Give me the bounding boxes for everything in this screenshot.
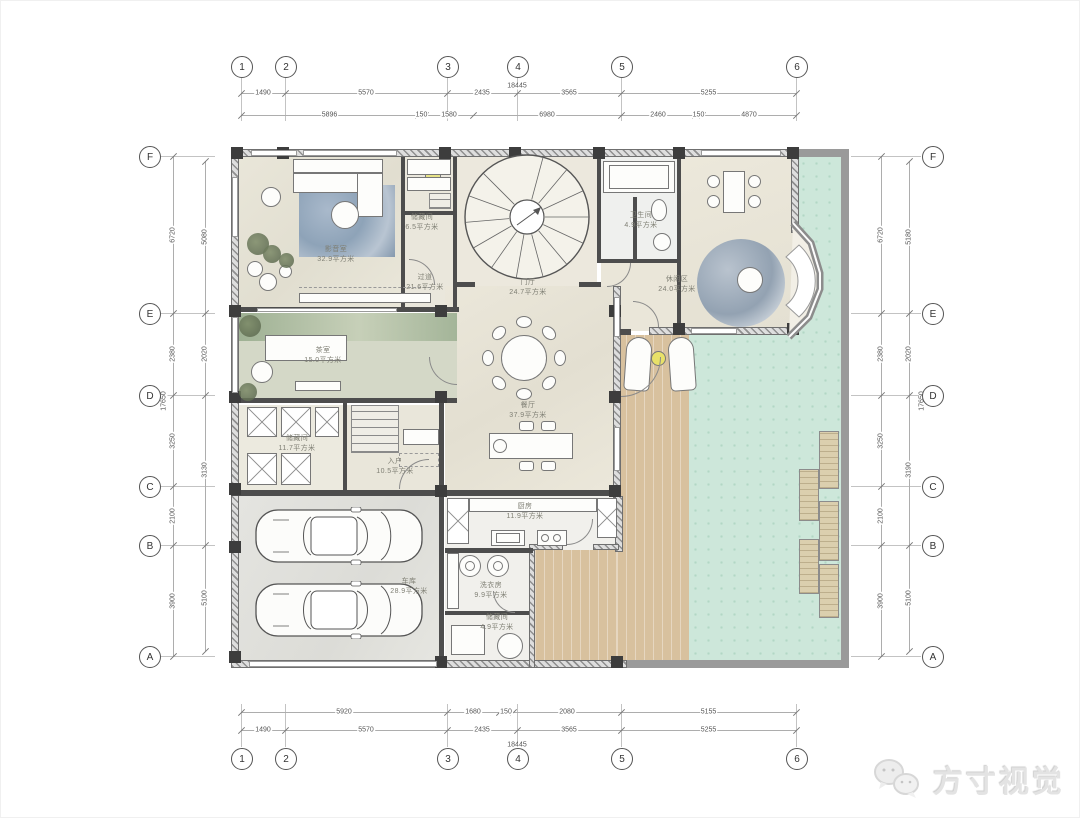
room-area: 11.9平方米 — [507, 512, 544, 522]
plant — [239, 315, 261, 337]
storage-rack — [281, 453, 311, 485]
grid-leader-line — [285, 704, 286, 747]
room-name: 厨房 — [507, 502, 544, 512]
room-label-厨房: 厨房11.9平方米 — [507, 502, 544, 522]
room-label-储藏间: 储藏间4.9平方米 — [480, 613, 513, 633]
grid-bubble-top-2: 2 — [275, 56, 297, 78]
room-area: 6.5平方米 — [405, 223, 438, 233]
window-media-north-2 — [303, 150, 397, 156]
island-stool — [519, 421, 534, 431]
wall-entry-east — [439, 402, 444, 668]
room-label-过道: 过道21.6平方米 — [406, 273, 443, 293]
garden-planter — [819, 431, 839, 489]
game-chair — [707, 175, 720, 188]
spiral-stair — [457, 151, 597, 287]
dimension-value: 2100 — [170, 507, 177, 525]
room-name: 储藏间 — [405, 213, 438, 223]
room-label-门厅: 门厅24.7平方米 — [509, 278, 546, 298]
room-area: 15.0平方米 — [304, 356, 341, 366]
shower-tray — [609, 165, 669, 189]
coffee-table — [331, 201, 359, 229]
room-label-洗衣房: 洗衣房9.9平方米 — [474, 581, 507, 601]
game-table — [723, 171, 745, 213]
column — [229, 483, 241, 495]
dimension-value: 5080 — [202, 228, 209, 246]
room-name: 洗衣房 — [474, 581, 507, 591]
dimension-value: 2460 — [649, 112, 667, 119]
vase — [247, 261, 263, 277]
room-area: 10.5平方米 — [376, 467, 413, 477]
dimension-value: 2435 — [473, 90, 491, 97]
bay-window — [741, 217, 827, 343]
dimension-value: 1680 — [464, 709, 482, 716]
room-area: 21.6平方米 — [406, 283, 443, 293]
washer-drum — [465, 561, 475, 571]
room-name: 茶室 — [304, 346, 341, 356]
garden-planter — [799, 539, 819, 594]
grid-leader-line — [161, 156, 215, 157]
closet-shelf — [407, 159, 451, 175]
dimension-value: 2435 — [473, 727, 491, 734]
dimension-value: 3900 — [878, 592, 885, 610]
island-stool — [541, 421, 556, 431]
dimension-value: 2380 — [878, 345, 885, 363]
burner — [541, 534, 549, 542]
site-wall-right — [841, 149, 849, 668]
grid-leader-line — [161, 656, 215, 657]
dimension-value: 2020 — [906, 345, 913, 363]
column — [609, 391, 621, 403]
dimension-value: 5100 — [906, 589, 913, 607]
dimension-value: 3250 — [878, 432, 885, 450]
grid-bubble-bottom-3: 3 — [437, 748, 459, 770]
dimension-value: 2020 — [202, 345, 209, 363]
dimension-value: 3250 — [170, 432, 177, 450]
wechat-icon — [871, 757, 923, 801]
kitchen-sink-bowl — [496, 533, 520, 543]
grid-bubble-left-A: A — [139, 646, 161, 668]
dimension-value: 2080 — [558, 709, 576, 716]
dimension-value: 4870 — [740, 112, 758, 119]
room-name: 入户 — [376, 457, 413, 467]
grid-leader-line — [161, 313, 215, 314]
dimension-value: 3565 — [560, 90, 578, 97]
dimension-value: 5920 — [335, 709, 353, 716]
island-stool — [519, 461, 534, 471]
dimension-value: 5255 — [700, 727, 718, 734]
grid-bubble-top-3: 3 — [437, 56, 459, 78]
column — [435, 391, 447, 403]
tea-bench — [295, 381, 341, 391]
dimension-tick — [202, 648, 209, 655]
room-area: 24.7平方米 — [509, 288, 546, 298]
dimension-value: 5570 — [357, 90, 375, 97]
wall-bath-game — [677, 157, 681, 331]
column — [435, 305, 447, 317]
tea-chair — [251, 361, 273, 383]
grid-bubble-right-C: C — [922, 476, 944, 498]
column — [787, 147, 799, 159]
grid-bubble-top-5: 5 — [611, 56, 633, 78]
plant — [239, 383, 257, 401]
wall-laundry-east — [529, 550, 535, 668]
grid-bubble-right-A: A — [922, 646, 944, 668]
room-area: 32.9平方米 — [317, 255, 354, 265]
closet-shelf — [407, 177, 451, 191]
dimension-value: 3190 — [906, 461, 913, 479]
window-media-north-1 — [251, 150, 297, 156]
kitchen-tall-cabinet — [597, 498, 617, 538]
dimension-value: 150 — [499, 709, 513, 716]
room-area: 37.9平方米 — [509, 411, 546, 421]
dimension-value: 2380 — [170, 345, 177, 363]
storage-rack — [315, 407, 339, 437]
room-label-车库: 车库28.9平方米 — [390, 577, 427, 597]
room-label-卫生间: 卫生间4.9平方米 — [624, 211, 657, 231]
dimension-value: 1580 — [440, 112, 458, 119]
grid-bubble-left-E: E — [139, 303, 161, 325]
dimension-value: 1490 — [254, 90, 272, 97]
laundry-counter — [447, 553, 459, 609]
grid-bubble-right-B: B — [922, 535, 944, 557]
dimension-value: 5570 — [357, 727, 375, 734]
dining-chair — [482, 350, 494, 366]
entry-stair — [351, 405, 399, 453]
grid-bubble-top-1: 1 — [231, 56, 253, 78]
storage-rack — [247, 407, 277, 437]
room-name: 休闲区 — [658, 275, 695, 285]
room-name: 餐厅 — [509, 401, 546, 411]
grid-leader-line — [851, 156, 921, 157]
column — [673, 147, 685, 159]
column — [231, 147, 243, 159]
room-name: 储藏间 — [480, 613, 513, 623]
room-label-休闲区: 休闲区24.0平方米 — [658, 275, 695, 295]
plant — [279, 253, 294, 268]
wood-deck-south — [535, 550, 617, 660]
wall-kitchen-south-b — [593, 544, 619, 550]
closet-rack — [429, 193, 451, 209]
tv-cabinet — [299, 293, 431, 303]
column — [609, 485, 621, 497]
room-label-储藏间: 储藏间11.7平方米 — [279, 434, 316, 454]
grid-leader-line — [161, 395, 215, 396]
dimension-value: 5180 — [906, 228, 913, 246]
dining-chair — [554, 350, 566, 366]
column — [229, 305, 241, 317]
room-label-影音室: 影音室32.9平方米 — [317, 245, 354, 265]
storage-rack — [281, 407, 311, 437]
site-wall-bottom — [625, 660, 849, 668]
dimension-total: 17650 — [161, 390, 168, 411]
grid-leader-line — [161, 545, 215, 546]
wall-storage-entry — [343, 402, 347, 495]
floor-plan-sheet: 方寸视觉 123456123456FEDCBAFEDCBA14905570243… — [0, 0, 1080, 818]
basin — [653, 233, 671, 251]
dimension-value: 3900 — [170, 592, 177, 610]
room-name: 卫生间 — [624, 211, 657, 221]
armchair — [261, 187, 281, 207]
store-round-table — [497, 633, 523, 659]
room-area: 28.9平方米 — [390, 587, 427, 597]
island-basin — [493, 439, 507, 453]
column — [673, 323, 685, 335]
grid-bubble-left-C: C — [139, 476, 161, 498]
grid-bubble-right-D: D — [922, 385, 944, 407]
dining-chair — [516, 316, 532, 328]
dimension-tick — [906, 648, 913, 655]
window-media-west — [232, 177, 238, 237]
grid-bubble-top-6: 6 — [786, 56, 808, 78]
dimension-value: 3130 — [202, 461, 209, 479]
storage-rack — [247, 453, 277, 485]
room-area: 11.7平方米 — [279, 444, 316, 454]
grid-bubble-right-F: F — [922, 146, 944, 168]
room-label-茶室: 茶室15.0平方米 — [304, 346, 341, 366]
dimension-value: 2100 — [878, 507, 885, 525]
grid-bubble-bottom-5: 5 — [611, 748, 633, 770]
garden-planter — [819, 564, 839, 618]
dimension-value: 6980 — [538, 112, 556, 119]
sofa-back — [293, 159, 383, 173]
dimension-value: 150 — [415, 112, 429, 119]
garage-door — [249, 661, 437, 667]
grid-leader-line — [851, 656, 921, 657]
dimension-value: 6720 — [878, 226, 885, 244]
garden-planter — [799, 469, 819, 521]
game-chair — [748, 195, 761, 208]
room-area: 9.9平方米 — [474, 591, 507, 601]
wall-stair-bath — [597, 157, 601, 263]
room-area: 4.9平方米 — [624, 221, 657, 231]
lounge-chair — [667, 336, 697, 392]
dimension-value: 5896 — [321, 112, 339, 119]
vase — [259, 273, 277, 291]
column — [229, 541, 241, 553]
game-chair — [707, 195, 720, 208]
dryer-drum — [493, 561, 503, 571]
room-name: 影音室 — [317, 245, 354, 255]
window-hall-east-2 — [614, 427, 620, 471]
room-name: 车库 — [390, 577, 427, 587]
dimension-value: 5155 — [700, 709, 718, 716]
dimension-value: 5255 — [700, 90, 718, 97]
kitchen-tall-cabinet — [447, 498, 469, 544]
game-chair — [748, 175, 761, 188]
room-label-储藏间: 储藏间6.5平方米 — [405, 213, 438, 233]
grid-bubble-left-F: F — [139, 146, 161, 168]
grid-leader-line — [161, 486, 215, 487]
window-tea-west — [232, 317, 238, 393]
dining-chair — [516, 388, 532, 400]
grid-bubble-right-E: E — [922, 303, 944, 325]
grid-bubble-left-D: D — [139, 385, 161, 407]
grid-bubble-bottom-2: 2 — [275, 748, 297, 770]
room-label-餐厅: 餐厅37.9平方米 — [509, 401, 546, 421]
watermark: 方寸视觉 — [871, 757, 1065, 801]
window-game-north — [701, 150, 781, 156]
grid-bubble-bottom-6: 6 — [786, 748, 808, 770]
window-game-south — [691, 328, 737, 334]
room-area: 24.0平方米 — [658, 285, 695, 295]
column — [229, 651, 241, 663]
column — [439, 147, 451, 159]
column — [611, 656, 623, 668]
shoe-cabinet — [403, 429, 439, 445]
grid-leader-line — [851, 486, 921, 487]
car-1 — [253, 507, 425, 565]
room-name: 储藏间 — [279, 434, 316, 444]
room-area: 4.9平方米 — [480, 623, 513, 633]
island-stool — [541, 461, 556, 471]
window-media-south — [257, 308, 397, 312]
garden-planter — [819, 501, 839, 561]
grid-bubble-top-4: 4 — [507, 56, 529, 78]
dimension-value: 1490 — [254, 727, 272, 734]
grid-bubble-left-B: B — [139, 535, 161, 557]
dimension-value: 5100 — [202, 589, 209, 607]
room-name: 过道 — [406, 273, 443, 283]
window-hall-east-1 — [614, 297, 620, 337]
dimension-value: 150 — [692, 112, 706, 119]
dining-table-round — [501, 335, 547, 381]
column — [435, 485, 447, 497]
dimension-total: 18445 — [506, 83, 527, 90]
sofa-chaise — [357, 173, 383, 217]
wall-kitchen-north — [445, 490, 619, 496]
dimension-value: 3565 — [560, 727, 578, 734]
watermark-brand: 方寸视觉 — [933, 757, 1065, 801]
wall-garage-north — [231, 490, 443, 496]
burner — [553, 534, 561, 542]
dimension-value: 6720 — [170, 226, 177, 244]
grid-bubble-bottom-4: 4 — [507, 748, 529, 770]
room-name: 门厅 — [509, 278, 546, 288]
room-label-入户: 入户10.5平方米 — [376, 457, 413, 477]
grid-bubble-bottom-1: 1 — [231, 748, 253, 770]
